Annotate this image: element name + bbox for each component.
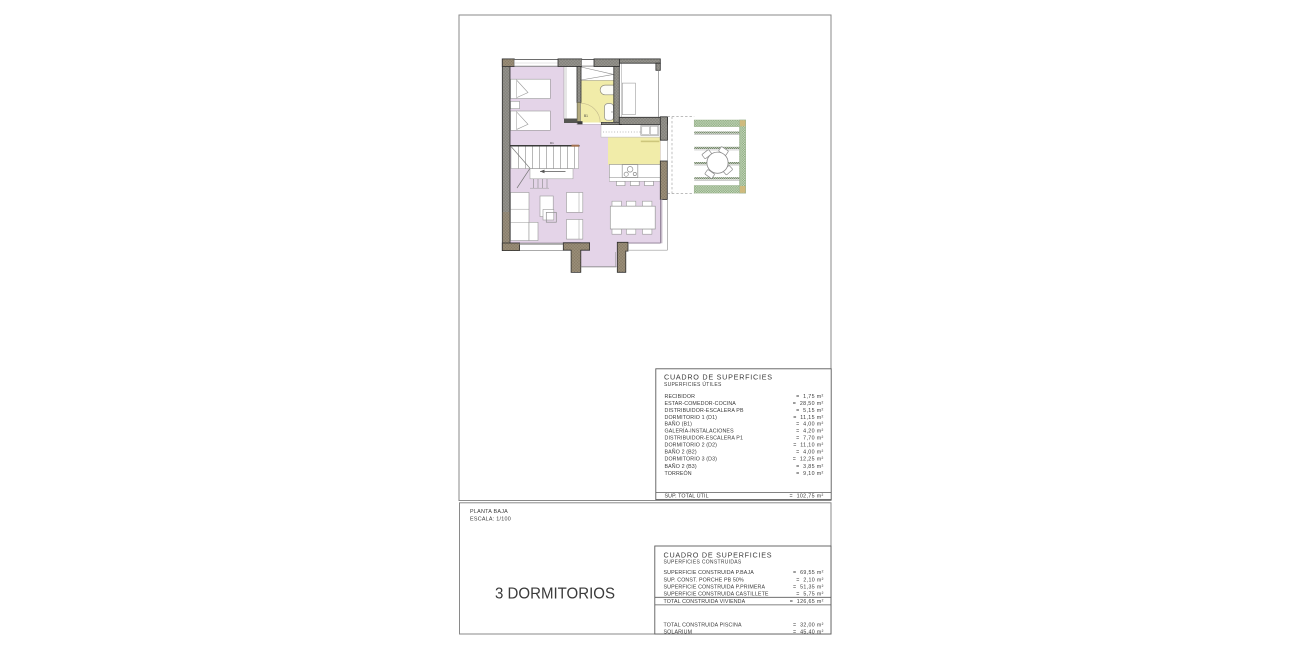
- svg-text:RECIBIDOR: RECIBIDOR: [665, 394, 696, 400]
- svg-text:ESTAR-COMEDOR-COCINA: ESTAR-COMEDOR-COCINA: [665, 401, 737, 407]
- svg-text:TOTAL CONSTRUIDA PISCINA: TOTAL CONSTRUIDA PISCINA: [664, 622, 742, 628]
- svg-text:= 45,40 m²: = 45,40 m²: [793, 629, 824, 635]
- svg-text:SUP. TOTAL ÚTIL: SUP. TOTAL ÚTIL: [665, 493, 709, 500]
- svg-text:SOLARIUM: SOLARIUM: [664, 629, 693, 635]
- svg-text:= 11,15 m²: = 11,15 m²: [793, 415, 823, 421]
- svg-text:TOTAL CONSTRUIDA VIVIENDA: TOTAL CONSTRUIDA VIVIENDA: [664, 599, 746, 605]
- svg-text:PLANTA BAJA: PLANTA BAJA: [470, 509, 508, 515]
- svg-text:= 126,65 m²: = 126,65 m²: [790, 599, 824, 605]
- svg-text:ESCALA: 1/100: ESCALA: 1/100: [470, 516, 511, 522]
- svg-text:= 3,85 m²: = 3,85 m²: [796, 464, 824, 470]
- svg-text:= 5,15 m²: = 5,15 m²: [796, 408, 824, 414]
- svg-text:SUPERFICIES CONSTRUIDAS: SUPERFICIES CONSTRUIDAS: [664, 560, 742, 566]
- svg-text:= 1,75 m²: = 1,75 m²: [796, 394, 824, 400]
- svg-text:BAÑO 2 (B3): BAÑO 2 (B3): [665, 463, 697, 470]
- svg-text:= 4,00 m²: = 4,00 m²: [796, 422, 824, 428]
- svg-text:SUPERFICIE CONSTRUIDA P.PRIMER: SUPERFICIE CONSTRUIDA P.PRIMERA: [664, 584, 766, 590]
- svg-text:SUPERFICIES ÚTILES: SUPERFICIES ÚTILES: [664, 381, 722, 388]
- svg-text:TORREÓN: TORREÓN: [665, 470, 692, 477]
- svg-text:= 4,20 m²: = 4,20 m²: [796, 429, 824, 435]
- svg-text:SUPERFICIE CONSTRUIDA P.BAJA: SUPERFICIE CONSTRUIDA P.BAJA: [664, 570, 755, 576]
- svg-text:D1: D1: [550, 141, 554, 145]
- svg-text:= 12,25 m²: = 12,25 m²: [793, 457, 824, 463]
- svg-text:= 7,70 m²: = 7,70 m²: [796, 436, 824, 442]
- svg-text:BAÑO 2 (B2): BAÑO 2 (B2): [665, 449, 697, 456]
- svg-text:DORMITORIO 3 (D3): DORMITORIO 3 (D3): [665, 457, 718, 463]
- svg-text:= 32,00 m²: = 32,00 m²: [793, 622, 824, 628]
- svg-text:DISTRIBUIDOR-ESCALERA P1: DISTRIBUIDOR-ESCALERA P1: [665, 436, 744, 442]
- svg-text:SUP. CONST. PORCHE PB 50%: SUP. CONST. PORCHE PB 50%: [664, 577, 744, 583]
- svg-text:= 28,50 m²: = 28,50 m²: [793, 401, 824, 407]
- svg-text:= 9,10 m²: = 9,10 m²: [796, 471, 824, 477]
- svg-text:= 102,75 m²: = 102,75 m²: [790, 494, 824, 500]
- svg-text:DORMITORIO 2 (D2): DORMITORIO 2 (D2): [665, 443, 718, 449]
- svg-text:GALERÍA-INSTALACIONES: GALERÍA-INSTALACIONES: [665, 428, 735, 435]
- svg-text:= 4,00 m²: = 4,00 m²: [796, 450, 824, 456]
- svg-text:CUADRO DE SUPERFICIES: CUADRO DE SUPERFICIES: [664, 551, 773, 560]
- svg-text:DISTRIBUIDOR-ESCALERA PB: DISTRIBUIDOR-ESCALERA PB: [665, 408, 744, 414]
- svg-text:= 69,55 m²: = 69,55 m²: [793, 570, 824, 576]
- svg-text:B1: B1: [584, 114, 588, 118]
- svg-text:= 51,35 m²: = 51,35 m²: [793, 584, 824, 590]
- svg-text:DORMITORIO 1 (D1): DORMITORIO 1 (D1): [665, 415, 718, 421]
- svg-text:SUPERFICIE CONSTRUIDA CASTILLE: SUPERFICIE CONSTRUIDA CASTILLETE: [664, 592, 769, 598]
- svg-text:BAÑO (B1): BAÑO (B1): [665, 421, 693, 428]
- svg-text:= 5,75 m²: = 5,75 m²: [796, 592, 824, 598]
- svg-text:3 DORMITORIOS: 3 DORMITORIOS: [495, 585, 615, 602]
- svg-text:= 11,10 m²: = 11,10 m²: [793, 443, 823, 449]
- svg-text:= 2,10 m²: = 2,10 m²: [796, 577, 824, 583]
- svg-text:CUADRO DE SUPERFICIES: CUADRO DE SUPERFICIES: [664, 372, 773, 381]
